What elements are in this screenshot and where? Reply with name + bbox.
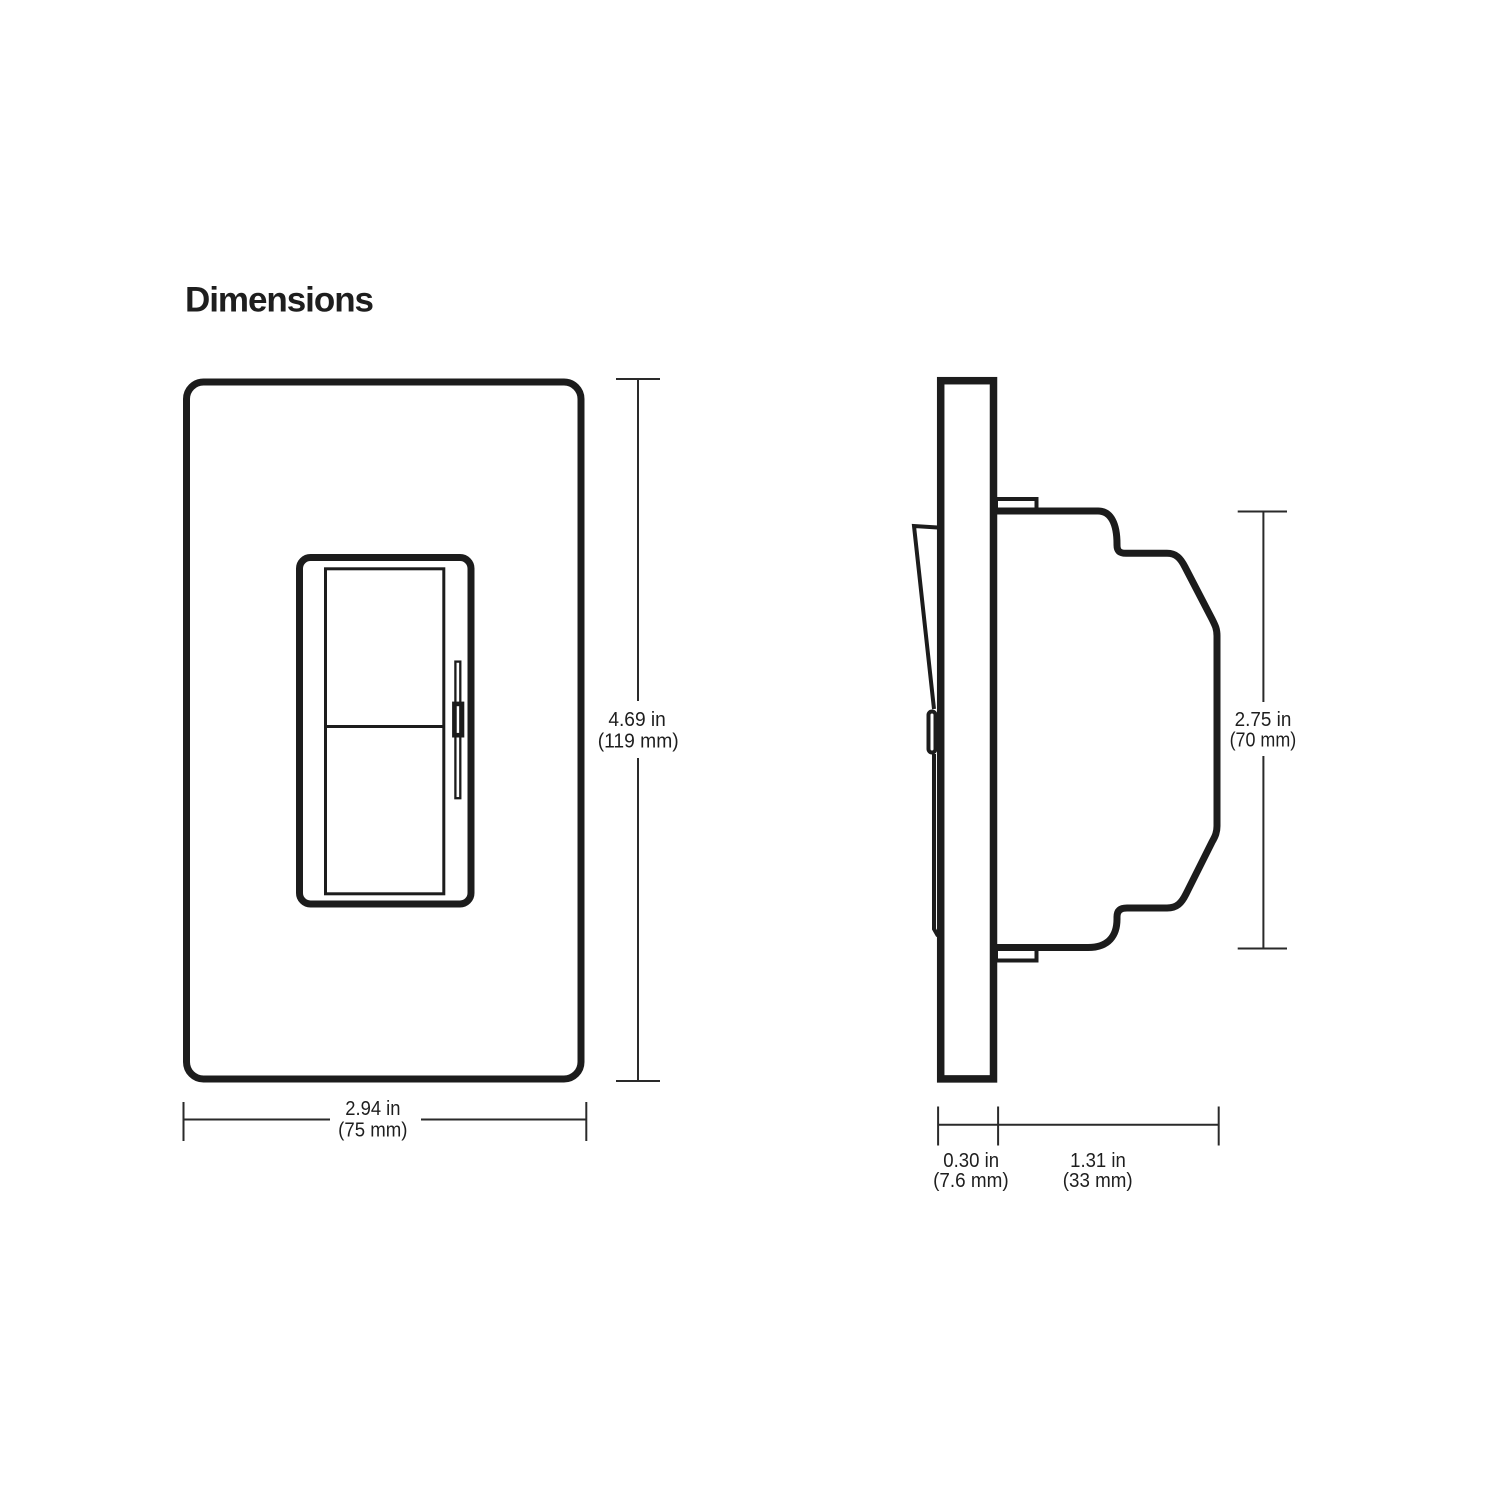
svg-text:(75 mm): (75 mm) [338,1119,407,1141]
svg-text:0.30 in: 0.30 in [943,1150,999,1172]
svg-text:(70 mm): (70 mm) [1230,730,1297,752]
svg-text:(7.6 mm): (7.6 mm) [933,1170,1009,1192]
svg-text:(33 mm): (33 mm) [1063,1170,1133,1192]
svg-text:4.69 in: 4.69 in [608,709,666,731]
svg-text:2.75 in: 2.75 in [1235,709,1292,731]
svg-text:(119 mm): (119 mm) [598,730,679,752]
svg-text:2.94 in: 2.94 in [345,1098,400,1120]
svg-text:1.31 in: 1.31 in [1070,1150,1126,1172]
svg-text:Dimensions: Dimensions [185,281,374,320]
